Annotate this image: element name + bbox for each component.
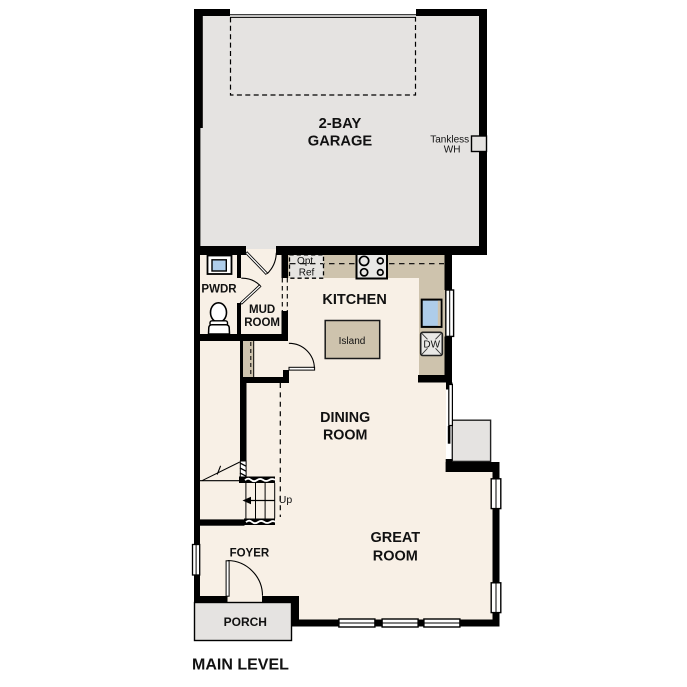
svg-text:DINING: DINING [320,410,370,426]
svg-text:KITCHEN: KITCHEN [322,292,386,308]
svg-text:ROOM: ROOM [244,317,280,329]
svg-text:Opt.: Opt. [297,256,316,267]
svg-text:Ref: Ref [299,267,315,278]
svg-text:Island: Island [339,336,366,347]
svg-text:ROOM: ROOM [323,427,367,443]
svg-text:GARAGE: GARAGE [308,134,373,150]
svg-text:Up: Up [279,494,293,506]
svg-text:PORCH: PORCH [224,615,267,629]
svg-text:FOYER: FOYER [230,548,270,560]
svg-text:ROOM: ROOM [373,549,418,565]
svg-text:GREAT: GREAT [370,530,420,546]
svg-text:MUD: MUD [249,304,275,316]
svg-text:DW: DW [423,340,440,351]
svg-text:2-BAY: 2-BAY [319,116,362,132]
svg-text:PWDR: PWDR [201,284,237,296]
svg-text:Tankless: Tankless [430,134,469,145]
svg-text:WH: WH [444,145,461,156]
svg-text:MAIN LEVEL: MAIN LEVEL [192,657,289,674]
